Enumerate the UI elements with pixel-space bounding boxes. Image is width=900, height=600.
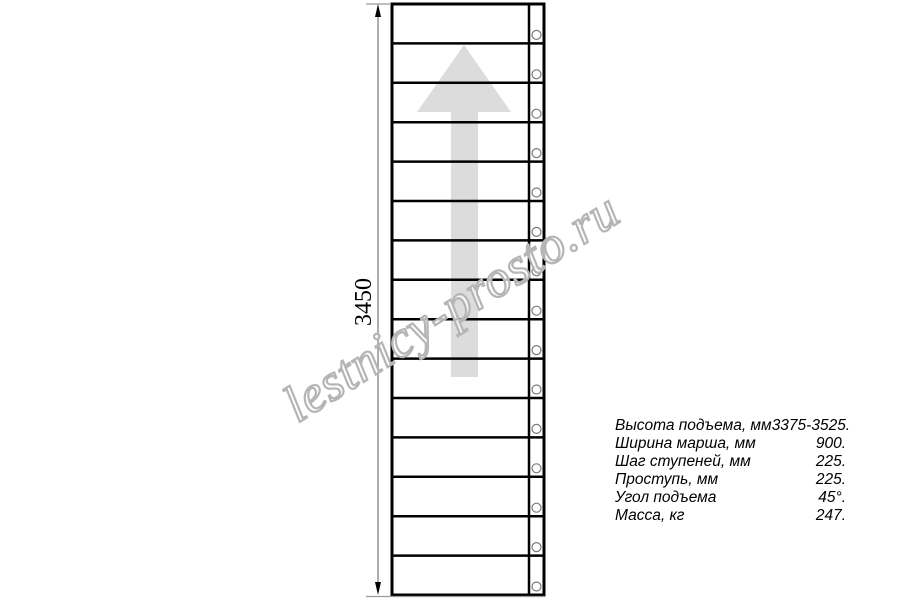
- spec-row-height: Высота подъема, мм 3375-3525.: [615, 417, 846, 435]
- stringer-hole: [532, 70, 541, 79]
- stringer-hole: [532, 30, 541, 39]
- stringer-hole: [532, 346, 541, 355]
- stringer-hole: [532, 109, 541, 118]
- spec-value: 247.: [816, 507, 846, 525]
- spec-row-angle: Угол подъема 45°.: [615, 489, 846, 507]
- stringer-holes: [532, 30, 541, 591]
- stringer-hole: [532, 503, 541, 512]
- stringer-hole: [532, 188, 541, 197]
- stringer-hole: [532, 543, 541, 552]
- up-arrow: [417, 45, 511, 377]
- spec-value: 225.: [816, 453, 846, 471]
- dimension-label: 3450: [351, 278, 377, 326]
- stringer-hole: [532, 149, 541, 158]
- spec-label: Шаг ступеней, мм: [615, 453, 751, 471]
- spec-label: Высота подъема, мм: [615, 417, 772, 435]
- drawing-canvas: 3450 Высота подъема, мм 3375-3525. Ширин…: [0, 0, 900, 600]
- spec-value: 45°.: [818, 489, 846, 507]
- stringer-hole: [532, 464, 541, 473]
- dimension-arrow-bottom-icon: [375, 582, 381, 595]
- spec-row-width: Ширина марша, мм 900.: [615, 435, 846, 453]
- stringer-hole: [532, 267, 541, 276]
- stringer-hole: [532, 424, 541, 433]
- spec-label: Проступь, мм: [615, 471, 718, 489]
- spec-row-mass: Масса, кг 247.: [615, 507, 846, 525]
- stringer-hole: [532, 306, 541, 315]
- spec-value: 3375-3525.: [772, 417, 850, 435]
- stringer-hole: [532, 227, 541, 236]
- spec-label: Ширина марша, мм: [615, 435, 756, 453]
- dimension-arrow-top-icon: [375, 4, 381, 17]
- spec-table: Высота подъема, мм 3375-3525. Ширина мар…: [615, 417, 846, 525]
- spec-row-tread: Проступь, мм 225.: [615, 471, 846, 489]
- spec-value: 225.: [816, 471, 846, 489]
- spec-value: 900.: [816, 435, 846, 453]
- stringer-hole: [532, 385, 541, 394]
- stringer-hole: [532, 582, 541, 591]
- spec-row-step-pitch: Шаг ступеней, мм 225.: [615, 453, 846, 471]
- spec-label: Масса, кг: [615, 507, 684, 525]
- spec-label: Угол подъема: [615, 489, 716, 507]
